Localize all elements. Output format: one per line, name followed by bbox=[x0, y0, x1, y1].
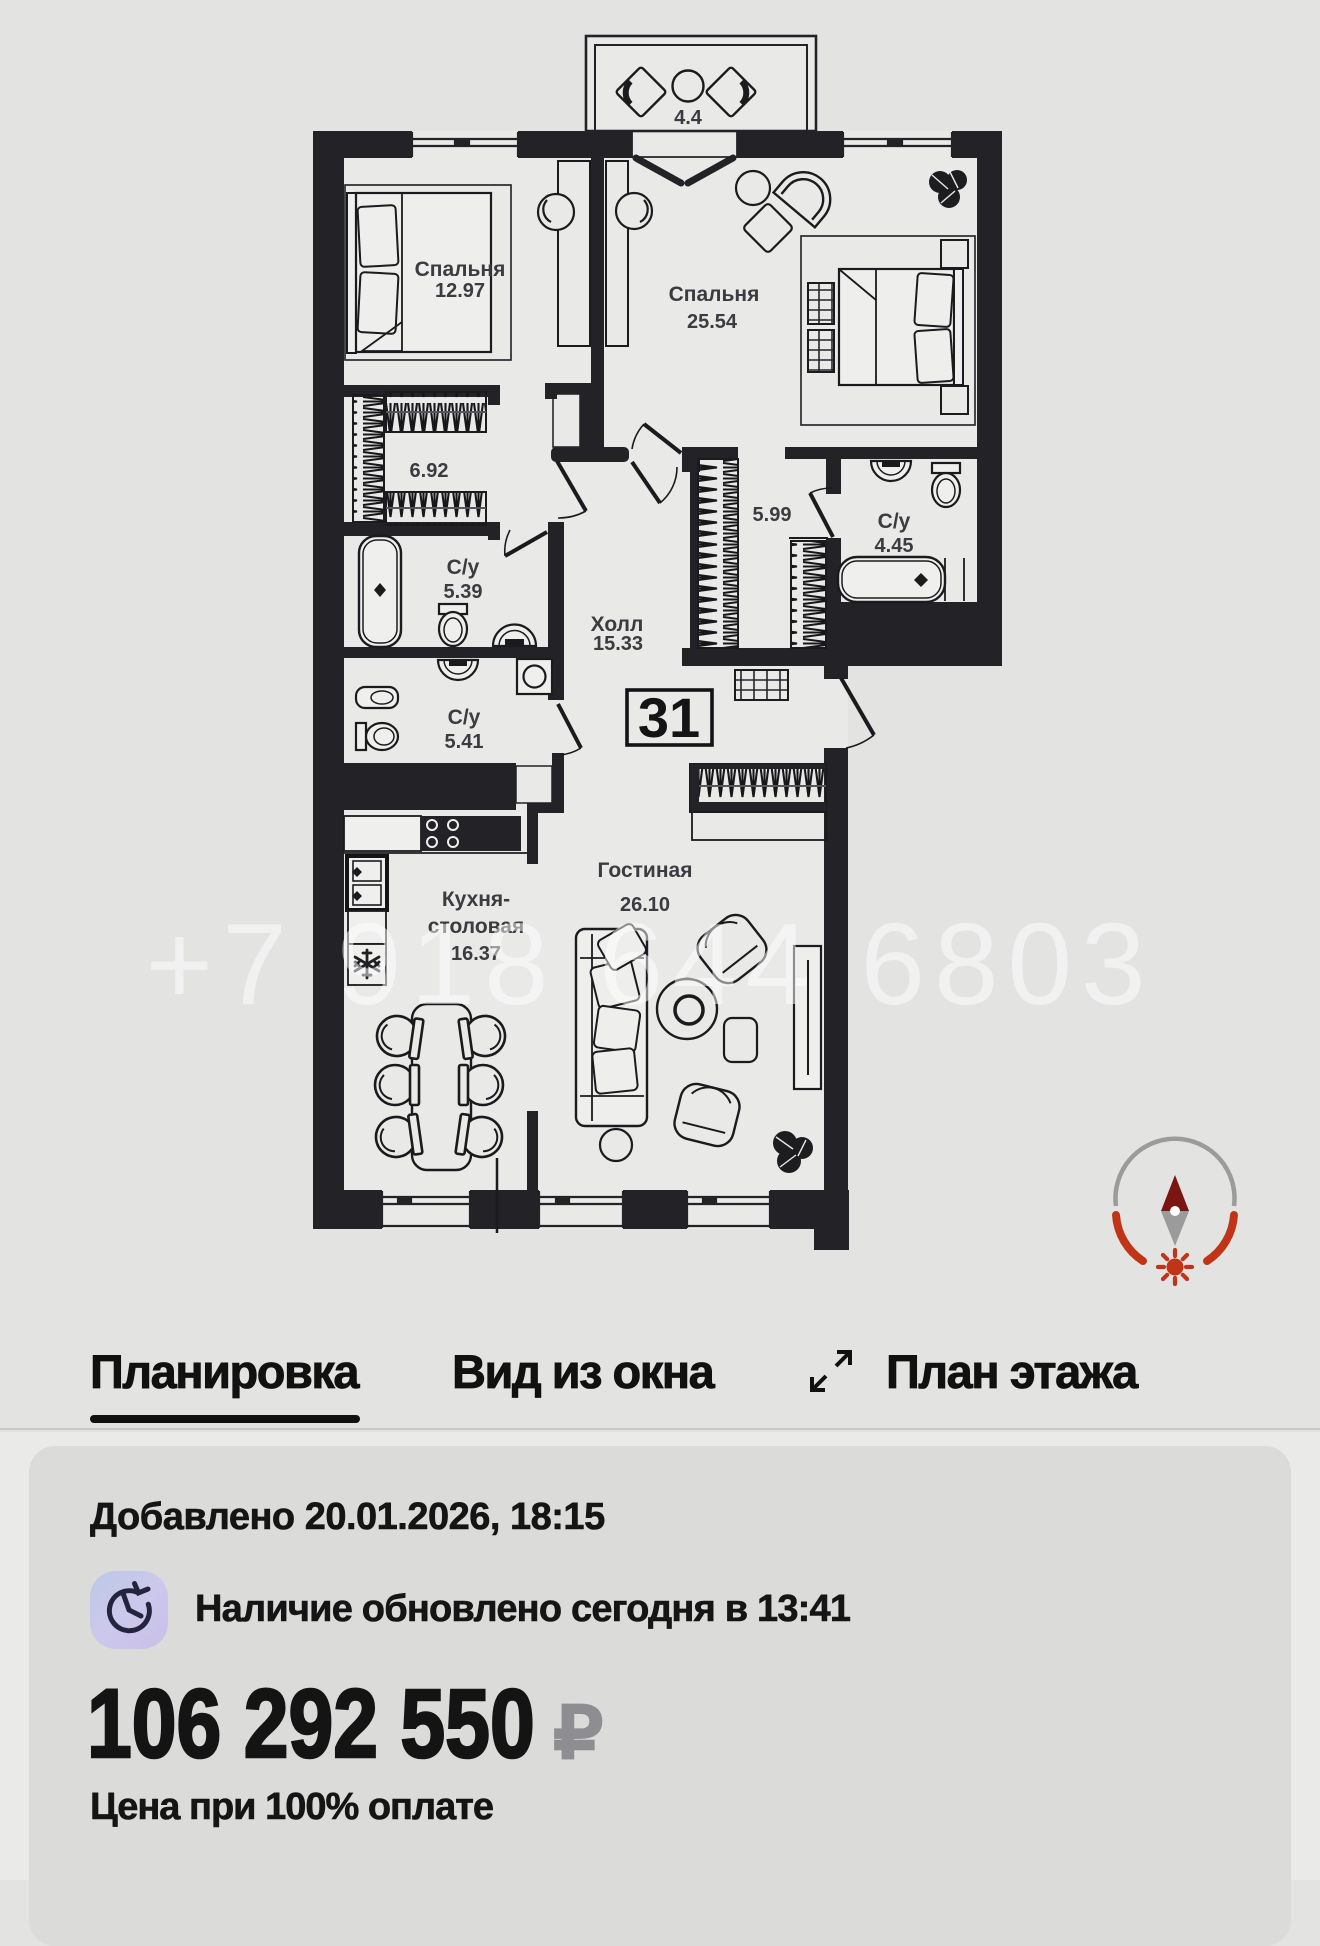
svg-text:5.41: 5.41 bbox=[445, 731, 484, 753]
svg-text:15.33: 15.33 bbox=[593, 633, 643, 655]
svg-text:12.97: 12.97 bbox=[435, 280, 485, 302]
svg-text:6.92: 6.92 bbox=[410, 460, 449, 482]
svg-text:31: 31 bbox=[638, 686, 700, 749]
svg-text:25.54: 25.54 bbox=[687, 311, 738, 333]
svg-text:+7 918 644 6803: +7 918 644 6803 bbox=[145, 899, 1154, 1029]
svg-text:С/у: С/у bbox=[447, 556, 480, 579]
svg-text:5.99: 5.99 bbox=[753, 504, 792, 526]
svg-text:С/у: С/у bbox=[878, 510, 911, 533]
svg-text:С/у: С/у bbox=[448, 706, 481, 729]
svg-text:Гостиная: Гостиная bbox=[598, 859, 693, 882]
svg-text:4.45: 4.45 bbox=[875, 535, 914, 557]
svg-text:Спальня: Спальня bbox=[415, 258, 506, 281]
svg-text:5.39: 5.39 bbox=[444, 581, 483, 603]
svg-text:Спальня: Спальня bbox=[669, 283, 760, 306]
svg-text:4.4: 4.4 bbox=[674, 107, 703, 129]
